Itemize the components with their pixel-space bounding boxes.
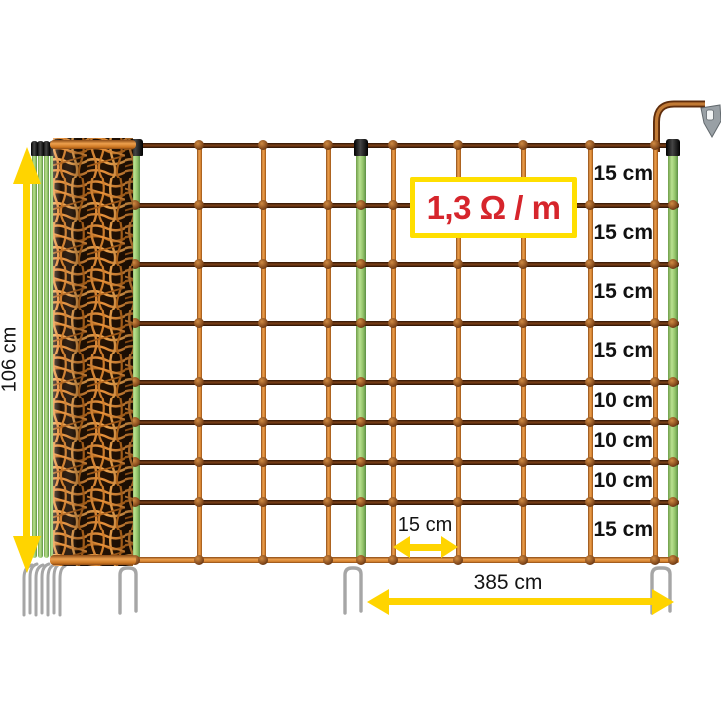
- wire-knot: [258, 140, 268, 150]
- wire-knot: [518, 417, 528, 427]
- wire-knot: [518, 555, 528, 565]
- wire-knot: [258, 457, 268, 467]
- wire-knot: [518, 457, 528, 467]
- height-dimension-arrow: [23, 180, 30, 538]
- horizontal-wire: [128, 380, 679, 385]
- wire-knot: [650, 200, 660, 210]
- wire-knot: [194, 259, 204, 269]
- net-roll: [49, 134, 139, 570]
- wire-knot: [194, 318, 204, 328]
- row-spacing-label: 15 cm: [561, 339, 653, 365]
- horizontal-wire: [128, 420, 679, 425]
- wire-knot: [258, 318, 268, 328]
- wire-knot: [323, 555, 333, 565]
- post-cap: [354, 139, 368, 156]
- height-label: 106 cm: [0, 319, 22, 401]
- wire-knot: [194, 377, 204, 387]
- wire-knot: [668, 259, 678, 269]
- row-spacing-label: 10 cm: [561, 469, 653, 495]
- wire-knot: [356, 200, 366, 210]
- wire-knot: [323, 457, 333, 467]
- wire-knot: [194, 457, 204, 467]
- wire-knot: [650, 140, 660, 150]
- wire-knot: [650, 259, 660, 269]
- horizontal-wire: [128, 203, 679, 208]
- wire-knot: [585, 497, 595, 507]
- wire-knot: [356, 457, 366, 467]
- post-cap: [666, 139, 680, 156]
- wire-knot: [258, 417, 268, 427]
- row-spacing-label: 10 cm: [561, 429, 653, 455]
- wire-knot: [356, 377, 366, 387]
- wire-knot: [194, 140, 204, 150]
- length-label: 385 cm: [448, 571, 568, 595]
- wire-knot: [518, 318, 528, 328]
- horizontal-wire: [128, 262, 679, 267]
- wire-knot: [585, 555, 595, 565]
- wire-knot: [258, 200, 268, 210]
- wire-knot: [258, 555, 268, 565]
- wire-knot: [585, 259, 595, 269]
- electric-fence-net-diagram: 106 cm 15 cm 385 cm 15 cm 15 cm 15 cm 15…: [0, 0, 721, 721]
- wire-knot: [585, 417, 595, 427]
- wire-knot: [258, 259, 268, 269]
- wire-knot: [585, 318, 595, 328]
- mesh-arrow-right-icon: [441, 536, 458, 558]
- bundle-post: [32, 150, 37, 558]
- wire-knot: [585, 377, 595, 387]
- length-arrow-left-icon: [367, 589, 389, 615]
- wire-knot: [453, 377, 463, 387]
- wire-knot: [668, 417, 678, 427]
- wire-knot: [668, 318, 678, 328]
- bundle-post: [38, 150, 43, 558]
- wire-knot: [388, 417, 398, 427]
- wire-knot: [585, 140, 595, 150]
- horizontal-wire: [128, 500, 679, 505]
- mesh-dimension-arrow: [408, 544, 442, 551]
- wire-knot: [668, 377, 678, 387]
- height-arrow-up-icon: [13, 147, 41, 184]
- wire-knot: [323, 318, 333, 328]
- wire-knot: [668, 200, 678, 210]
- wire-knot: [453, 497, 463, 507]
- wire-knot: [258, 497, 268, 507]
- wire-knot: [356, 318, 366, 328]
- row-spacing-label: 15 cm: [561, 280, 653, 306]
- horizontal-wire: [128, 321, 679, 326]
- wire-knot: [388, 457, 398, 467]
- wire-knot: [323, 417, 333, 427]
- wire-knot: [453, 318, 463, 328]
- wire-knot: [650, 457, 660, 467]
- wire-knot: [650, 377, 660, 387]
- wire-knot: [518, 140, 528, 150]
- wire-knot: [194, 555, 204, 565]
- wire-knot: [518, 377, 528, 387]
- wire-knot: [356, 497, 366, 507]
- wire-knot: [388, 140, 398, 150]
- wire-knot: [388, 497, 398, 507]
- wire-knot: [453, 457, 463, 467]
- wire-knot: [650, 417, 660, 427]
- length-dimension-arrow: [387, 598, 653, 605]
- wire-knot: [388, 318, 398, 328]
- height-arrow-down-icon: [13, 536, 41, 573]
- wire-knot: [323, 200, 333, 210]
- wire-knot: [585, 457, 595, 467]
- row-spacing-label: 15 cm: [561, 518, 653, 544]
- wire-knot: [388, 377, 398, 387]
- wire-knot: [323, 140, 333, 150]
- horizontal-wire: [128, 143, 679, 148]
- wire-knot: [258, 377, 268, 387]
- wire-knot: [453, 259, 463, 269]
- wire-knot: [650, 318, 660, 328]
- roll-mesh: [50, 138, 136, 566]
- wire-knot: [650, 555, 660, 565]
- wire-knot: [453, 140, 463, 150]
- wire-knot: [323, 259, 333, 269]
- wire-knot: [518, 259, 528, 269]
- row-spacing-label: 10 cm: [561, 389, 653, 415]
- wire-knot: [194, 200, 204, 210]
- wire-knot: [194, 417, 204, 427]
- wire-knot: [668, 457, 678, 467]
- wire-knot: [453, 417, 463, 427]
- wire-knot: [668, 497, 678, 507]
- wire-knot: [518, 497, 528, 507]
- resistance-badge: 1,3 Ω / m: [410, 177, 577, 238]
- wire-knot: [668, 555, 678, 565]
- wire-knot: [356, 259, 366, 269]
- horizontal-wire: [128, 460, 679, 465]
- wire-knot: [323, 377, 333, 387]
- wire-knot: [388, 259, 398, 269]
- mesh-width-label: 15 cm: [385, 514, 465, 537]
- wire-knot: [323, 497, 333, 507]
- wire-knot: [356, 555, 366, 565]
- length-arrow-right-icon: [652, 589, 674, 615]
- wire-knot: [388, 200, 398, 210]
- wire-knot: [585, 200, 595, 210]
- wire-knot: [650, 497, 660, 507]
- wire-knot: [356, 417, 366, 427]
- wire-knot: [194, 497, 204, 507]
